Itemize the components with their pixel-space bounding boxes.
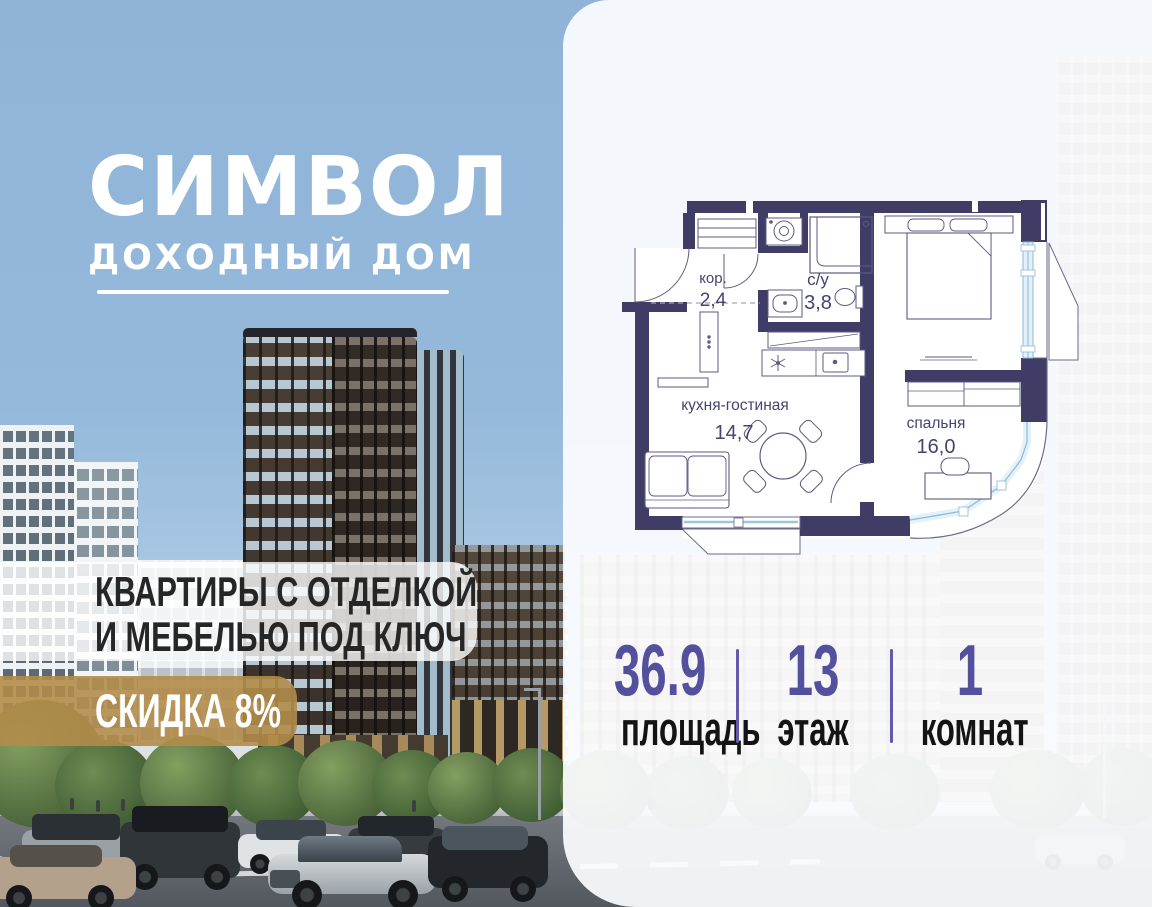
promo-banner: СИМВОЛ ДОХОДНЫЙ ДОМ КВАРТИРЫ С ОТДЕЛКОЙ … (0, 0, 1152, 907)
room-label-bedroom: спальня (907, 415, 966, 432)
logo-title: СИМВОЛ (88, 148, 458, 228)
room-area-kitchen-living: 14,7 (715, 422, 754, 444)
logo-underline (97, 290, 449, 294)
room-area-corridor: 2,4 (700, 290, 727, 311)
street-lamp (538, 688, 541, 820)
logo: СИМВОЛ ДОХОДНЫЙ ДОМ (88, 148, 458, 294)
floor-plan: кор. 2,4 с/у 3,8 кухня-гостиная 14,7 спа… (620, 190, 1108, 558)
stat-floor: 13 этаж (740, 640, 886, 749)
tower-roof (243, 328, 417, 337)
promo-line-1: КВАРТИРЫ С ОТДЕЛКОЙ (95, 569, 477, 614)
loggia-outline (682, 529, 800, 554)
room-label-bathroom: с/у (807, 270, 829, 289)
stat-rooms: 1 комнат (893, 640, 1047, 749)
pedestrian (70, 798, 74, 810)
stat-rooms-value: 1 (893, 640, 1047, 702)
car (120, 806, 240, 886)
pedestrian (96, 800, 100, 812)
logo-subtitle: ДОХОДНЫЙ ДОМ (88, 238, 458, 278)
stat-divider (736, 649, 739, 743)
stat-floor-label: этаж (740, 709, 886, 749)
stat-area: 36.9 площадь (585, 640, 735, 749)
discount-label: СКИДКА 8% (95, 676, 281, 746)
car-dark-minivan (428, 824, 548, 898)
stat-area-label: площадь (585, 709, 735, 749)
stat-area-value: 36.9 (585, 640, 735, 702)
car (0, 845, 136, 905)
discount-band: СКИДКА 8% (0, 676, 297, 746)
stat-floor-value: 13 (740, 640, 886, 702)
room-area-bedroom: 16,0 (917, 436, 956, 458)
street-lamp-arm (524, 688, 541, 691)
room-label-kitchen-living: кухня-гостиная (681, 397, 789, 414)
stat-rooms-label: комнат (893, 709, 1047, 749)
car-silver-sedan (268, 836, 436, 900)
promo-line-2: И МЕБЕЛЬЮ ПОД КЛЮЧ (95, 614, 477, 659)
pedestrian (412, 800, 416, 812)
promo-band: КВАРТИРЫ С ОТДЕЛКОЙ И МЕБЕЛЬЮ ПОД КЛЮЧ (0, 562, 477, 661)
promo-text: КВАРТИРЫ С ОТДЕЛКОЙ И МЕБЕЛЬЮ ПОД КЛЮЧ (95, 569, 477, 659)
room-area-bathroom: 3,8 (804, 292, 832, 314)
balcony-outline (1049, 243, 1078, 360)
room-label-corridor: кор. (699, 270, 727, 287)
